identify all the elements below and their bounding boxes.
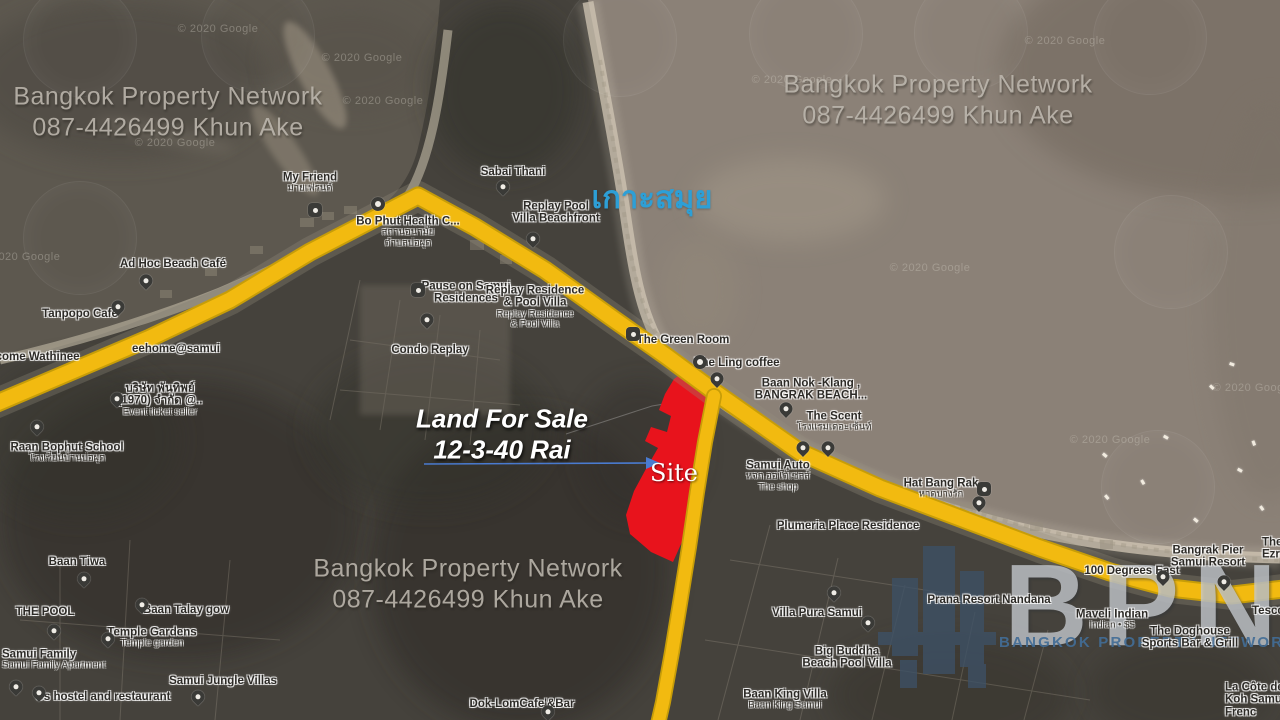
camera-icon[interactable] xyxy=(977,482,991,496)
poi-name-line: Baan Talay gow xyxy=(143,604,229,616)
map-poi-label[interactable]: Baan Talay gow xyxy=(143,604,229,616)
island-name-label: เกาะสมุย xyxy=(592,172,713,222)
poi-name-line: Sabai Thani xyxy=(481,166,546,178)
map-poi-label[interactable]: Hat Bang Rakหาดบางรัก xyxy=(904,478,979,501)
poi-name-line: Ezra xyxy=(1262,549,1280,561)
poi-name-line: Samui Jungle Villas xyxy=(169,675,277,687)
poi-name-line: Frenc xyxy=(1225,706,1280,718)
poi-subtitle-line: Indian • $$ xyxy=(1076,621,1148,631)
map-poi-label[interactable]: Big BuddhaBeach Pool Villa xyxy=(802,646,891,671)
map-poi-label[interactable]: Bangrak PierSamui Resort xyxy=(1171,545,1245,570)
poi-name-line: Villa Pura Samui xyxy=(772,607,862,619)
poi-name-line: La Côte de B xyxy=(1225,681,1280,693)
poi-subtitle-line: โรงแรมเดอะเซ้นท์ xyxy=(796,423,871,433)
map-poi-label[interactable]: Prana Resort Nandana xyxy=(927,594,1050,606)
map-poi-label[interactable]: Raan Bophut Schoolโรงเรียนบ้านบ่อผุด xyxy=(10,442,123,465)
land-for-sale-annotation: Land For Sale 12-3-40 Rai xyxy=(416,403,588,464)
restaurant-icon[interactable] xyxy=(308,203,322,217)
map-poi-label[interactable]: My Friendมายเฟรนด์ xyxy=(283,172,337,195)
poi-name-line: & Pool Villa xyxy=(486,297,584,309)
poi-name-line: Koh Samui xyxy=(1225,694,1280,706)
map-poi-label[interactable]: The Ling coffee xyxy=(695,357,780,369)
poi-name-line: BANGRAK BEACH... xyxy=(755,390,867,402)
poi-dot-icon[interactable] xyxy=(693,355,707,369)
place-pin-icon[interactable] xyxy=(45,622,63,640)
poi-subtitle-line: The shop xyxy=(746,482,810,492)
place-pin-icon[interactable] xyxy=(418,311,436,329)
sale-area: 12-3-40 Rai xyxy=(416,434,588,465)
poi-name-line: lcome Wathinee xyxy=(0,351,80,363)
place-pin-icon[interactable] xyxy=(825,584,843,602)
poi-dot-icon[interactable] xyxy=(371,197,385,211)
map-poi-label[interactable]: lcome Wathinee xyxy=(0,351,80,363)
map-poi-label[interactable]: Tesco xyxy=(1252,605,1280,617)
map-poi-label[interactable]: Samui Jungle Villas xyxy=(169,675,277,687)
poi-name-line: Baan Nok -Klang , xyxy=(755,378,867,390)
lodging-icon[interactable] xyxy=(411,283,425,297)
map-poi-label[interactable]: Ad Hoc Beach Café xyxy=(120,258,226,270)
map-poi-label[interactable]: Replay Residence& Pool VillaReplay Resid… xyxy=(486,284,584,329)
map-poi-label[interactable]: The Scentโรงแรมเดอะเซ้นท์ xyxy=(796,411,871,434)
poi-name-line: Replay Residence xyxy=(486,284,584,296)
poi-subtitle-line: ตำบลบ่อผุด xyxy=(356,238,460,248)
map-poi-label[interactable]: Villa Pura Samui xyxy=(772,607,862,619)
poi-subtitle-line: & Pool Villa xyxy=(486,319,584,329)
place-pin-icon[interactable] xyxy=(75,570,93,588)
brand-watermark: Bangkok Property Network087-4426499 Khun… xyxy=(313,554,622,615)
map-poi-label[interactable]: Plumeria Place Residence xyxy=(777,520,920,532)
place-pin-icon[interactable] xyxy=(819,439,837,457)
place-pin-icon[interactable] xyxy=(189,688,207,706)
poi-name-line: eehome@samui xyxy=(132,343,220,355)
poi-subtitle-line: หาดบางรัก xyxy=(904,490,979,500)
watermark-phone-line: 087-4426499 Khun Ake xyxy=(313,584,622,615)
poi-name-line: Prana Resort Nandana xyxy=(927,594,1050,606)
map-poi-label[interactable]: The DoghouseSports Bar & Grill xyxy=(1142,626,1239,651)
watermark-brand-line: Bangkok Property Network xyxy=(783,70,1092,101)
map-poi-label[interactable]: THE POOL xyxy=(16,606,75,618)
watermark-brand-line: Bangkok Property Network xyxy=(313,554,622,585)
cafe-pin-icon[interactable] xyxy=(708,370,726,388)
poi-name-line: Plumeria Place Residence xyxy=(777,520,920,532)
site-label: Site xyxy=(650,459,698,487)
poi-name-line: Dok-LomCafe'&Bar xyxy=(470,698,575,710)
map-poi-label[interactable]: Replay PoolVilla Beachfront xyxy=(512,201,599,226)
map-poi-label[interactable]: Samui Autoหจก.ออโต้เซลส์The shop xyxy=(746,460,810,493)
sale-title: Land For Sale xyxy=(416,403,588,434)
map-poi-label[interactable]: Baan Nok -Klang ,BANGRAK BEACH... xyxy=(755,378,867,403)
poi-name-line: Beach Pool Villa xyxy=(802,658,891,670)
place-pin-icon[interactable] xyxy=(794,439,812,457)
poi-name-line: Big Buddha xyxy=(802,646,891,658)
poi-name-line: Tanpopo Cafe xyxy=(42,308,118,320)
restaurant-pin-icon[interactable] xyxy=(137,272,155,290)
map-poi-label[interactable]: Maveli IndianIndian • $$ xyxy=(1076,609,1148,632)
poi-subtitle-line: มายเฟรนด์ xyxy=(283,184,337,194)
place-pin-icon[interactable] xyxy=(494,178,512,196)
restaurant-icon[interactable] xyxy=(626,327,640,341)
poi-subtitle-line: Samui Family Apartment xyxy=(2,661,105,671)
watermark-phone-line: 087-4426499 Khun Ake xyxy=(783,100,1092,131)
poi-name-line: Us hostel and restaurant xyxy=(36,691,171,703)
poi-subtitle-line: Baan King Samui xyxy=(743,701,827,711)
map-poi-label[interactable]: Baan King VillaBaan King Samui xyxy=(743,689,827,712)
school-pin-icon[interactable] xyxy=(28,418,46,436)
map-poi-label[interactable]: La Côte de BKoh SamuiFrenc xyxy=(1225,681,1280,718)
map-poi-label[interactable]: Tanpopo Cafe xyxy=(42,308,118,320)
satellite-map[interactable]: BPN BANGKOK PROPERTY NETWORK My Friendมา… xyxy=(0,0,1280,720)
map-poi-label[interactable]: Sabai Thani xyxy=(481,166,546,178)
map-poi-label[interactable]: Condo Replay xyxy=(391,344,468,356)
poi-name-line: The Ling coffee xyxy=(695,357,780,369)
map-poi-label[interactable]: Dok-LomCafe'&Bar xyxy=(470,698,575,710)
poi-subtitle-line: Temple garden xyxy=(107,639,196,649)
poi-name-line: Replay Pool xyxy=(512,201,599,213)
lodging-pin-icon[interactable] xyxy=(7,678,25,696)
watermark-brand-line: Bangkok Property Network xyxy=(13,82,322,113)
poi-name-line: Bangrak Pier xyxy=(1171,545,1245,557)
map-poi-label[interactable]: Temple GardensTemple garden xyxy=(107,627,196,650)
map-poi-label[interactable]: Us hostel and restaurant xyxy=(36,691,171,703)
poi-name-line: Condo Replay xyxy=(391,344,468,356)
poi-name-line: Samui Resort xyxy=(1171,557,1245,569)
map-poi-label[interactable]: บริษัท พันทิพย์(1970) จำกัด @..Event tic… xyxy=(118,382,203,417)
brand-watermark: Bangkok Property Network087-4426499 Khun… xyxy=(783,70,1092,131)
lodging-pin-icon[interactable] xyxy=(524,230,542,248)
map-poi-label[interactable]: The Green Room xyxy=(637,334,730,346)
poi-name-line: The Doghouse xyxy=(1142,626,1239,638)
place-pin-icon[interactable] xyxy=(1215,573,1233,591)
poi-name-line: Tesco xyxy=(1252,605,1280,617)
poi-name-line: The Green Room xyxy=(637,334,730,346)
poi-name-line: Sports Bar & Grill xyxy=(1142,638,1239,650)
brand-watermark: Bangkok Property Network087-4426499 Khun… xyxy=(13,82,322,143)
poi-name-line: The xyxy=(1262,537,1280,549)
watermark-phone-line: 087-4426499 Khun Ake xyxy=(13,112,322,143)
poi-subtitle-line: Event ticket seller xyxy=(118,407,203,417)
poi-name-line: บริษัท พันทิพย์ xyxy=(118,382,203,394)
map-poi-label[interactable]: Baan Tiwa xyxy=(49,556,106,568)
poi-name-line: (1970) จำกัด @.. xyxy=(118,395,203,407)
map-poi-label[interactable]: Samui FamilySamui Family Apartment xyxy=(2,649,105,672)
map-poi-label[interactable]: Bo Phut Health C...สถานอนามัยตำบลบ่อผุด xyxy=(356,216,460,249)
poi-name-line: THE POOL xyxy=(16,606,75,618)
poi-name-line: Baan Tiwa xyxy=(49,556,106,568)
map-poi-label[interactable]: TheEzra xyxy=(1262,537,1280,562)
poi-name-line: Ad Hoc Beach Café xyxy=(120,258,226,270)
map-poi-label[interactable]: eehome@samui xyxy=(132,343,220,355)
poi-name-line: Villa Beachfront xyxy=(512,213,599,225)
poi-subtitle-line: โรงเรียนบ้านบ่อผุด xyxy=(10,454,123,464)
